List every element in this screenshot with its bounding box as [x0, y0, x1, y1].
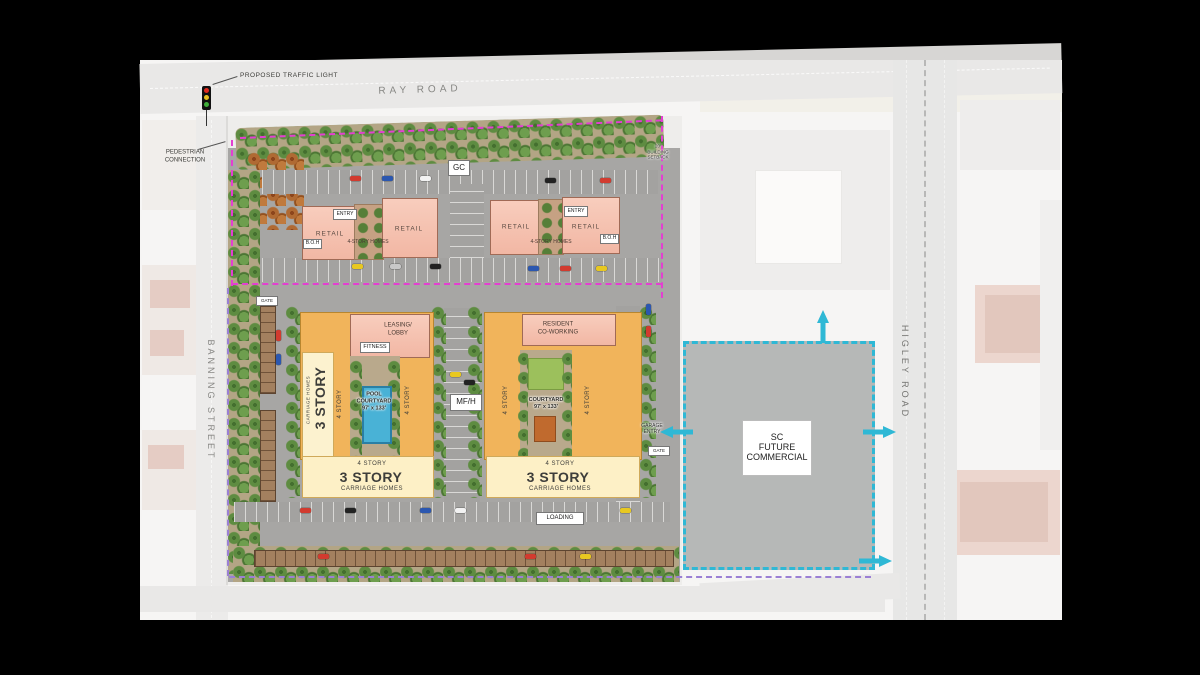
carport-row	[254, 550, 674, 567]
boundary-line-magenta-mid	[232, 283, 662, 285]
car	[350, 176, 361, 181]
leasing-lobby-label: LEASING/ LOBBY	[384, 323, 412, 338]
car	[646, 326, 651, 337]
car	[464, 380, 475, 385]
boundary-line-purple-west	[227, 288, 229, 576]
entry-tag: ENTRY	[333, 209, 357, 220]
car	[390, 264, 401, 269]
carriage-homes-side-label: CARRIAGE HOMES	[306, 376, 311, 424]
courtyard-trees	[518, 352, 528, 468]
boh-tag: B.O.H	[600, 234, 619, 244]
boh-tag: B.O.H	[303, 239, 322, 249]
coworking-label: RESIDENT CO-WORKING	[538, 322, 578, 337]
pedestrian-connection-label: PEDESTRIAN CONNECTION	[165, 150, 205, 165]
tree-island	[432, 306, 446, 498]
four-story-label: 4 STORY	[405, 386, 411, 415]
courtyard-lawn	[528, 358, 564, 390]
building-setback-label: 20' BUILDING SETBACK	[647, 144, 668, 161]
car	[560, 266, 571, 271]
car	[646, 304, 651, 315]
carport-row	[260, 306, 276, 394]
carport-row	[260, 410, 276, 502]
traffic-light-yellow	[204, 95, 209, 100]
four-story-label: 4 STORY	[546, 461, 575, 467]
car	[420, 176, 431, 181]
three-story-label: 3 STORY	[527, 469, 590, 485]
traffic-light-red	[204, 88, 209, 93]
four-story-label: 4 STORY	[503, 386, 509, 415]
fitness-tag: FITNESS	[360, 342, 390, 353]
car	[528, 266, 539, 271]
car	[430, 264, 441, 269]
mixed-use-nw-paseo	[354, 204, 384, 260]
car	[455, 508, 466, 513]
car	[600, 178, 611, 183]
car	[450, 372, 461, 377]
carriage-homes-label: CARRIAGE HOMES	[341, 486, 403, 492]
car	[596, 266, 607, 271]
retail-label: RETAIL	[395, 226, 423, 233]
gate-tag: GATE	[648, 446, 670, 456]
aerial-fade	[226, 585, 682, 620]
carriage-homes-label: CARRIAGE HOMES	[529, 486, 591, 492]
traffic-light-green	[204, 102, 209, 107]
courtyard-fountain	[534, 416, 556, 442]
traffic-light-label: PROPOSED TRAFFIC LIGHT	[240, 72, 338, 79]
future-commercial-label: SC FUTURE COMMERCIAL	[742, 420, 812, 476]
traffic-light-pole	[206, 110, 207, 126]
car	[276, 330, 281, 341]
four-story-label: 4 STORY	[585, 386, 591, 415]
tree-island	[286, 306, 300, 498]
higley-road-label: HIGLEY ROAD	[900, 325, 910, 419]
aerial-fade	[140, 60, 1062, 116]
parking-row	[450, 184, 484, 258]
car	[318, 554, 329, 559]
four-story-label: 4 STORY	[337, 390, 343, 419]
car	[620, 508, 631, 513]
mixed-use-ne-paseo	[538, 199, 564, 255]
courtyard-trees	[350, 360, 362, 466]
gate-tag: GATE	[256, 296, 278, 306]
pool-courtyard-label: POOL COURTYARD 97' x 133'	[357, 392, 392, 413]
retail-label: RETAIL	[316, 231, 344, 238]
access-arrow-right	[857, 553, 895, 569]
access-arrow-up	[815, 307, 831, 345]
courtyard-label: COURTYARD 97' x 133'	[529, 397, 564, 411]
four-story-label: 4 STORY	[358, 461, 387, 467]
retail-label: RETAIL	[572, 224, 600, 231]
gc-marker: GC	[448, 160, 470, 176]
three-story-side-label: 3 STORY	[312, 367, 328, 430]
retail-label: RETAIL	[502, 224, 530, 231]
courtyard-trees	[562, 352, 572, 468]
car	[276, 354, 281, 365]
car	[420, 508, 431, 513]
loading-tag: LOADING	[536, 512, 584, 525]
entry-tag: ENTRY	[564, 206, 588, 217]
car	[352, 264, 363, 269]
access-arrow-left	[657, 424, 695, 440]
car	[382, 176, 393, 181]
access-arrow-right	[861, 424, 899, 440]
car	[545, 178, 556, 183]
upper-homes-label: 4-STORY HOMES	[530, 239, 571, 245]
three-story-label: 3 STORY	[340, 469, 403, 485]
car	[345, 508, 356, 513]
upper-homes-label: 4-STORY HOMES	[347, 239, 388, 245]
car	[580, 554, 591, 559]
car	[300, 508, 311, 513]
mfh-marker: MF/H	[450, 394, 482, 411]
boundary-line-purple-south	[229, 576, 871, 578]
site-plan-canvas: RAY ROAD BANNING STREET HIGLEY ROAD PROP…	[0, 0, 1200, 675]
boundary-line-magenta-west	[231, 140, 233, 286]
car	[525, 554, 536, 559]
banning-street-label: BANNING STREET	[206, 339, 216, 460]
